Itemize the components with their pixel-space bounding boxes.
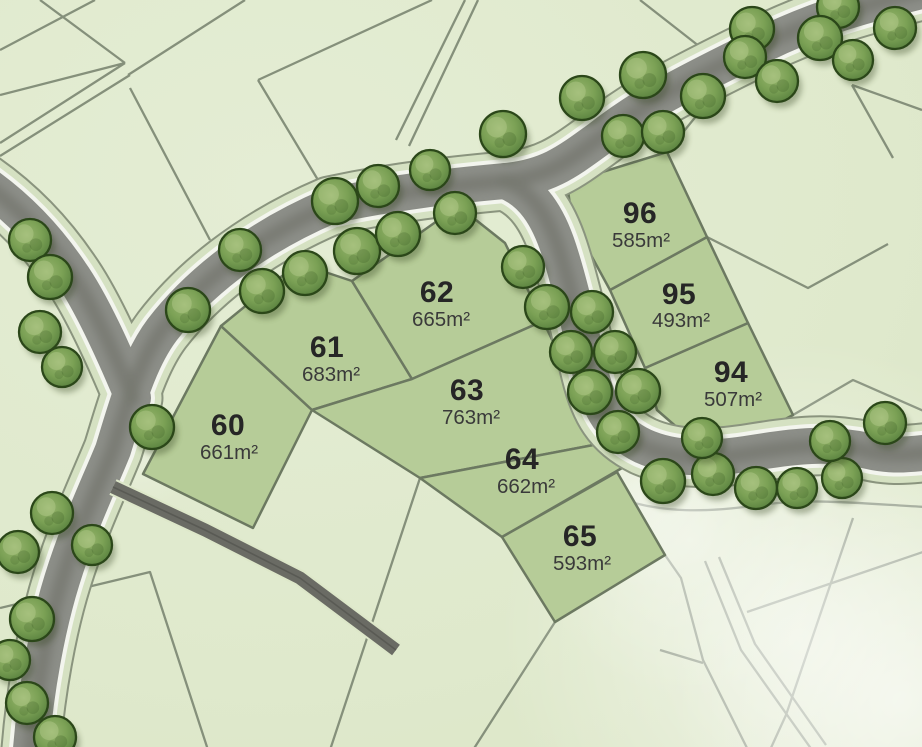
lot-96-number: 96 bbox=[623, 197, 657, 230]
lot-95-number: 95 bbox=[662, 278, 696, 311]
lot-94-number: 94 bbox=[714, 356, 748, 389]
lot-65-number: 65 bbox=[563, 520, 597, 553]
lot-94-area: 507m² bbox=[704, 388, 762, 411]
lot-95-area: 493m² bbox=[652, 309, 710, 332]
lot-62-number: 62 bbox=[420, 276, 454, 309]
lot-63-area: 763m² bbox=[442, 406, 500, 429]
lot-96-area: 585m² bbox=[612, 229, 670, 252]
lot-62-area: 665m² bbox=[412, 308, 470, 331]
lot-64-number: 64 bbox=[505, 443, 539, 476]
subdivision-map: 60 661m² 61 683m² 62 665m² 63 763m² 64 6… bbox=[0, 0, 922, 747]
lot-61-number: 61 bbox=[310, 331, 344, 364]
lot-61-area: 683m² bbox=[302, 363, 360, 386]
map-canvas: 60 661m² 61 683m² 62 665m² 63 763m² 64 6… bbox=[0, 0, 922, 747]
lot-60-number: 60 bbox=[211, 409, 245, 442]
lot-60-area: 661m² bbox=[200, 441, 258, 464]
lot-65-area: 593m² bbox=[553, 552, 611, 575]
lot-64-area: 662m² bbox=[497, 475, 555, 498]
lot-63-number: 63 bbox=[450, 374, 484, 407]
